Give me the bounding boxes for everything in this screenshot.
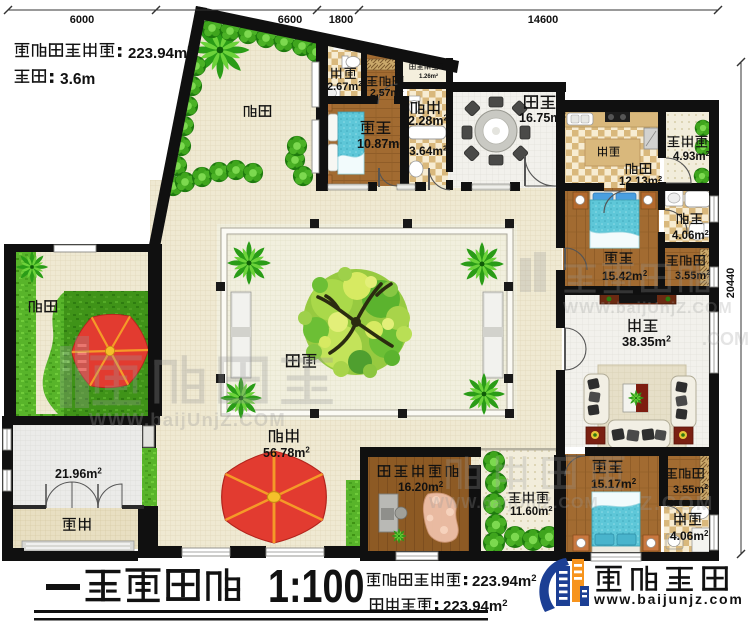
svg-text:2.57m2: 2.57m2 [370,87,404,99]
svg-text:1800: 1800 [329,14,353,26]
svg-text:6600: 6600 [278,14,302,26]
svg-text:WWW.baijUnjZ.COM: WWW.baijUnjZ.COM [89,409,286,430]
svg-text:2.67m2: 2.67m2 [327,81,362,93]
svg-text:WWW.baijUnjZ.COM: WWW.baijUnjZ.COM [429,495,599,512]
svg-text:56.78m2: 56.78m2 [263,446,310,461]
svg-text:Z.COM: Z.COM [640,493,714,515]
svg-text:10.87m2: 10.87m2 [357,137,404,152]
svg-text:6000: 6000 [70,14,94,26]
svg-text:1:100: 1:100 [268,560,364,611]
svg-text:4.93m2: 4.93m2 [673,149,710,163]
svg-text:4.06m2: 4.06m2 [672,228,709,242]
svg-text:14600: 14600 [528,14,559,26]
svg-text:38.35m2: 38.35m2 [622,334,671,350]
svg-text:223.94m2: 223.94m2 [128,44,193,62]
svg-text:2.28m2: 2.28m2 [408,114,448,129]
svg-text:1.26m²: 1.26m² [419,73,438,80]
svg-text:12.13m2: 12.13m2 [619,174,662,188]
svg-text:20440: 20440 [725,268,737,299]
svg-text:WWW.baijUnjZ.COM: WWW.baijUnjZ.COM [563,300,733,317]
svg-text:.COM: .COM [702,329,749,349]
svg-text:3.6m: 3.6m [60,71,95,88]
svg-text:16.20m2: 16.20m2 [398,480,444,494]
svg-text:223.94m2: 223.94m2 [443,598,508,615]
svg-text:21.96m2: 21.96m2 [55,467,102,482]
svg-text:www.baijunjz.com: www.baijunjz.com [593,591,744,607]
svg-text:223.94m2: 223.94m2 [472,573,537,590]
svg-text:4.06m2: 4.06m2 [670,529,709,543]
svg-text:3.64m2: 3.64m2 [409,144,447,159]
svg-text:16.75m2: 16.75m2 [519,111,566,126]
